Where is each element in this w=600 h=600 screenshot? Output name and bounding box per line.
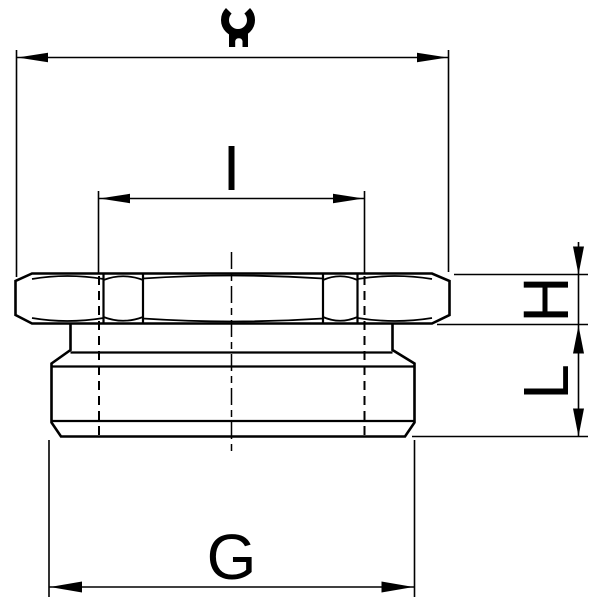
arrowhead-left — [100, 194, 131, 203]
arrowhead-right — [417, 53, 448, 62]
body-outline — [52, 324, 415, 437]
label-inner-thread: I — [223, 132, 241, 204]
label-outer-thread: G — [207, 521, 257, 593]
body-edge-lines — [52, 353, 415, 422]
arrowhead-right — [333, 194, 364, 203]
wrench-icon — [225, 11, 251, 47]
label-body-length: L — [510, 364, 582, 400]
arrowhead-right — [382, 582, 414, 593]
wrench-handle — [229, 30, 248, 47]
arrowhead-bottom — [573, 409, 584, 437]
arrowhead-top — [573, 247, 584, 275]
threaded-body — [52, 252, 415, 452]
hex-nut — [16, 274, 450, 324]
arrowhead-bottom — [573, 326, 584, 354]
wrench-jaw — [225, 11, 251, 33]
dimension-outer-thread: G — [49, 440, 415, 597]
dimension-nut-height: H — [437, 242, 588, 437]
dimension-body-length: L — [412, 364, 588, 436]
hex-facet-lines — [104, 274, 358, 324]
label-nut-height: H — [510, 276, 582, 322]
arrowhead-left — [50, 582, 82, 593]
technical-drawing: I H L G — [0, 0, 600, 600]
drawing-canvas: I H L G — [0, 0, 600, 600]
hex-outline — [16, 274, 450, 324]
arrowhead-left — [18, 53, 49, 62]
